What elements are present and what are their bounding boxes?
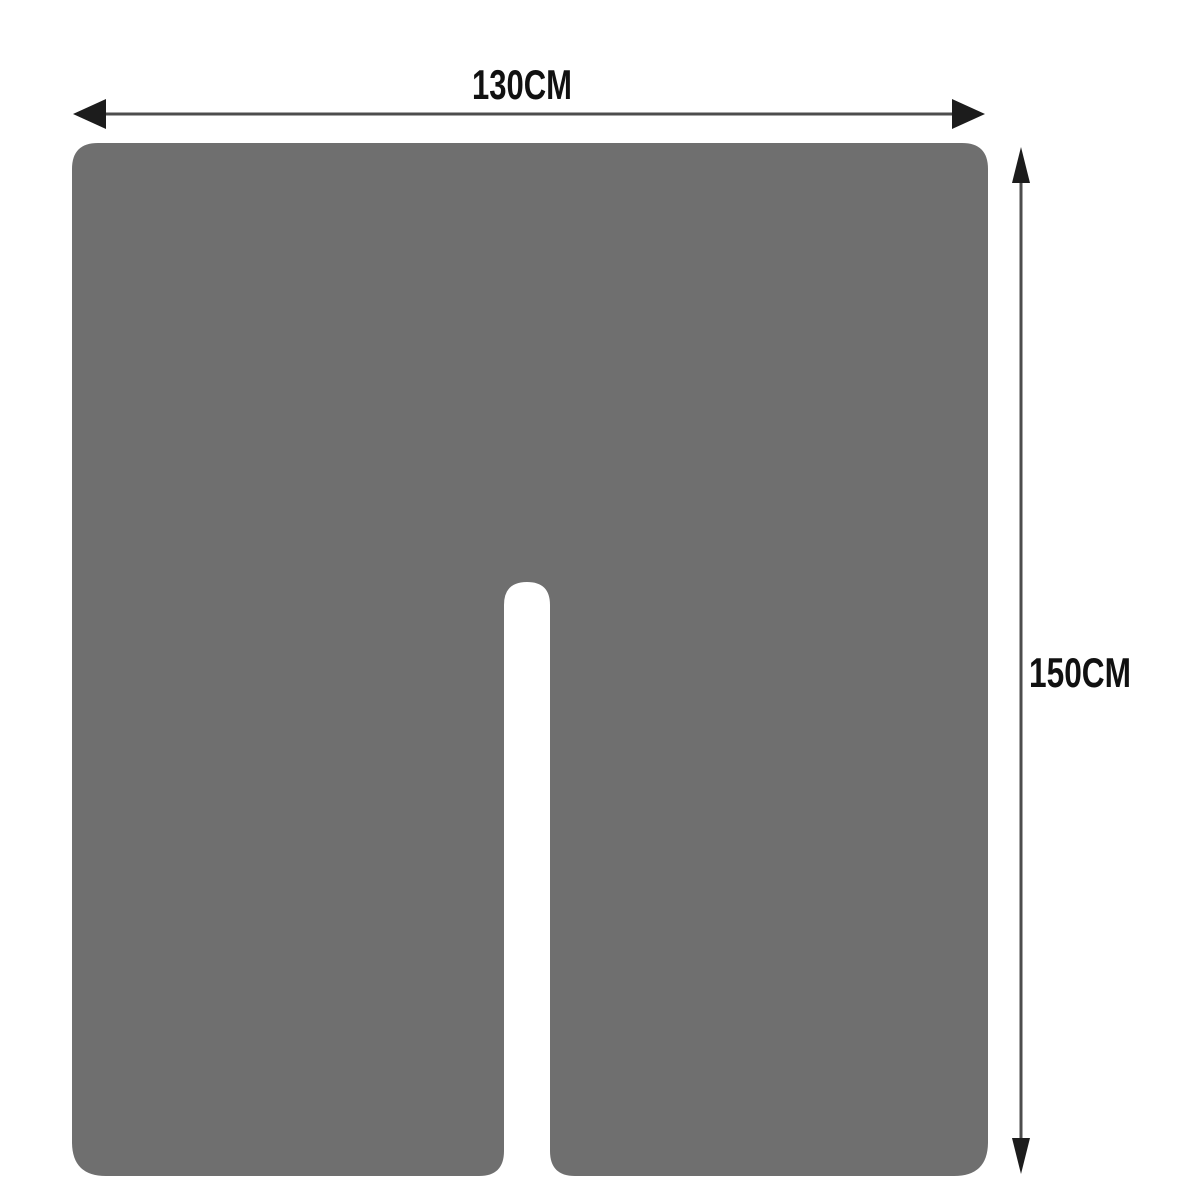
height-arrow [1012,147,1030,1174]
width-arrow-left-head [73,99,106,129]
diagram-canvas: 130CM 150CM [0,0,1200,1200]
height-dimension-label: 150CM [1029,649,1131,696]
dimension-diagram: 130CM 150CM [0,0,1200,1200]
width-arrow-right-head [952,99,985,129]
width-dimension-label: 130CM [472,61,572,108]
height-arrow-bottom-head [1012,1138,1030,1174]
height-arrow-top-head [1012,147,1030,183]
sheet-shape [72,143,988,1176]
